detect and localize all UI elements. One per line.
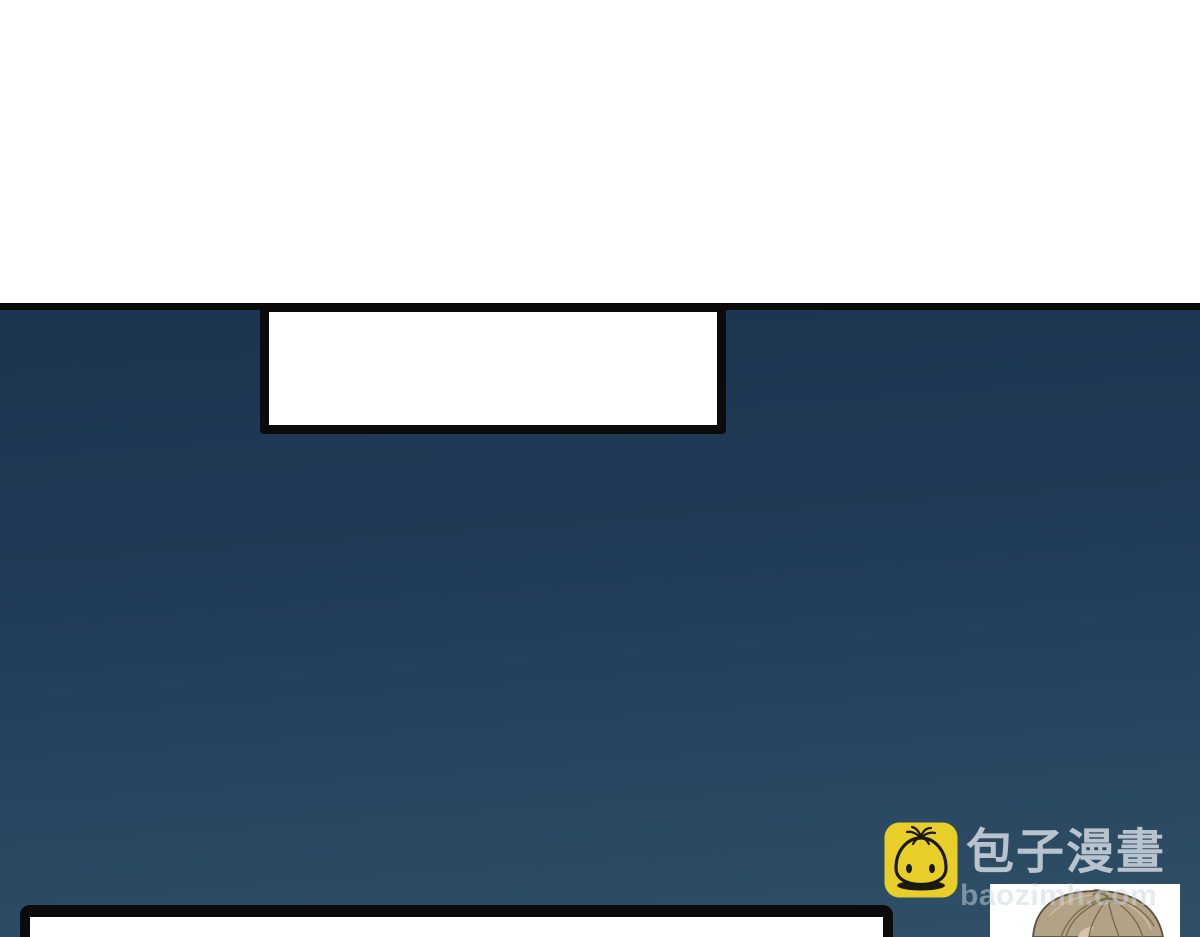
- baozi-bun-icon: [884, 822, 958, 898]
- watermark-url-text: baozimh.com: [960, 881, 1157, 911]
- webtoon-page: 包子漫畫 baozimh.com: [0, 0, 1200, 937]
- watermark-brand-text: 包子漫畫: [966, 829, 1166, 877]
- speech-box-bottom: [20, 905, 893, 937]
- speech-box-top: [260, 303, 726, 434]
- page-top-whitespace: [0, 0, 1200, 303]
